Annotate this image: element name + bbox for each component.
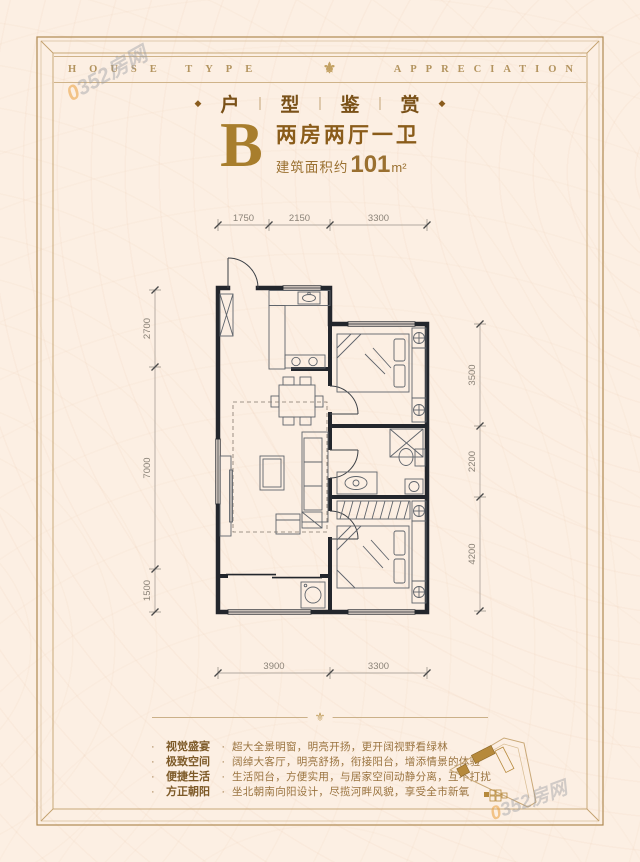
flue-shaft xyxy=(220,294,233,336)
dot-icon: · xyxy=(221,771,225,784)
dot-icon: · xyxy=(151,741,155,754)
feature-row: ·便捷生活· 生活阳台，方便实用，与居家空间动静分离，互不打扰 xyxy=(151,771,501,784)
bathroom xyxy=(337,429,425,494)
feature-text: 阔绰大客厅，明亮舒扬，衔接阳台，增添情景的体验 xyxy=(232,756,480,769)
fleur-de-lis-icon: ⚜ xyxy=(308,709,333,725)
kitchen-counter-sink-stove xyxy=(269,291,330,370)
banner-right-text: APPRECIATION xyxy=(394,64,586,75)
subtitle-char: 鉴 xyxy=(341,90,360,117)
diamond-icon: ◆ xyxy=(439,98,446,109)
dim-bottom-2: 3300 xyxy=(368,661,389,672)
separator: | xyxy=(379,95,382,112)
diamond-icon: ◆ xyxy=(195,98,202,109)
dim-top-3: 3300 xyxy=(368,213,389,224)
area-value: 101 xyxy=(350,151,390,179)
living-room xyxy=(220,402,328,536)
feature-row: ·视觉盛宴· 超大全景明窗，明亮开扬，更开阔视野看绿林 xyxy=(151,741,501,754)
dim-left-2: 7000 xyxy=(142,457,153,478)
banner-left-text: HOUSE TYPE xyxy=(54,64,265,75)
dimension-lines xyxy=(149,219,486,679)
dim-top-1: 1750 xyxy=(233,213,254,224)
feature-text: 坐北朝南向阳设计，尽揽河畔风貌，享受全市新氧 xyxy=(232,786,470,799)
dim-bottom-1: 3900 xyxy=(263,661,284,672)
feature-label: 便捷生活 xyxy=(166,771,210,784)
fleur-de-lis-icon: ⚜ xyxy=(323,59,336,78)
section-divider: ⚜ xyxy=(152,717,488,718)
feature-text: 超大全景明窗，明亮开扬，更开阔视野看绿林 xyxy=(232,741,448,754)
windows xyxy=(216,286,415,614)
furniture xyxy=(220,291,426,609)
english-banner: HOUSE TYPE ⚜ APPRECIATION xyxy=(54,56,586,83)
poster-page: HOUSE TYPE ⚜ APPRECIATION ◆ 户 | 型 | 鉴 | … xyxy=(0,0,640,862)
watermark-text: 352房网 xyxy=(497,778,570,822)
dim-right-3: 4200 xyxy=(467,543,478,564)
dim-left-3: 1500 xyxy=(142,580,153,601)
doors xyxy=(228,258,358,539)
feature-row: ·极致空间· 阔绰大客厅，明亮舒扬，衔接阳台，增添情景的体验 xyxy=(151,756,501,769)
watermark-digit: 0 xyxy=(488,802,505,825)
area-unit: m² xyxy=(391,160,406,175)
subtitle-char: 赏 xyxy=(401,90,420,117)
feature-row: ·方正朝阳· 坐北朝南向阳设计，尽揽河畔风貌，享受全市新氧 xyxy=(151,786,501,799)
walls xyxy=(218,288,427,612)
feature-label: 方正朝阳 xyxy=(166,786,210,799)
dot-icon: · xyxy=(221,756,225,769)
dimension-labels: 1750 2150 3300 2700 7000 1500 3500 2200 … xyxy=(142,213,478,672)
unit-title: 两房两厅一卫 xyxy=(276,119,420,149)
dim-right-1: 3500 xyxy=(467,364,478,385)
dot-icon: · xyxy=(221,786,225,799)
bedroom-2 xyxy=(337,501,426,603)
unit-letter: B xyxy=(220,116,263,174)
dot-icon: · xyxy=(151,771,155,784)
dot-icon: · xyxy=(221,741,225,754)
dining-table xyxy=(271,377,323,425)
floorplan: 1750 2150 3300 2700 7000 1500 3500 2200 … xyxy=(133,196,505,721)
balcony-washer xyxy=(301,582,325,608)
unit-area: 建筑面积约 101 m² xyxy=(276,151,420,179)
feature-list: ·视觉盛宴· 超大全景明窗，明亮开扬，更开阔视野看绿林 ·极致空间· 阔绰大客厅… xyxy=(151,741,501,801)
subtitle-char: 型 xyxy=(280,90,299,117)
area-prefix: 建筑面积约 xyxy=(276,156,349,176)
unit-heading: B 两房两厅一卫 建筑面积约 101 m² xyxy=(0,116,640,179)
dim-left-1: 2700 xyxy=(142,318,153,339)
dot-icon: · xyxy=(151,756,155,769)
chinese-subtitle: ◆ 户 | 型 | 鉴 | 赏 ◆ xyxy=(0,90,640,116)
dim-right-2: 2200 xyxy=(467,451,478,472)
separator: | xyxy=(318,95,321,112)
bedroom-1 xyxy=(337,328,426,422)
feature-text: 生活阳台，方便实用，与居家空间动静分离，互不打扰 xyxy=(232,771,491,784)
dot-icon: · xyxy=(151,786,155,799)
feature-label: 视觉盛宴 xyxy=(166,741,210,754)
feature-label: 极致空间 xyxy=(166,756,210,769)
dim-top-2: 2150 xyxy=(289,213,310,224)
